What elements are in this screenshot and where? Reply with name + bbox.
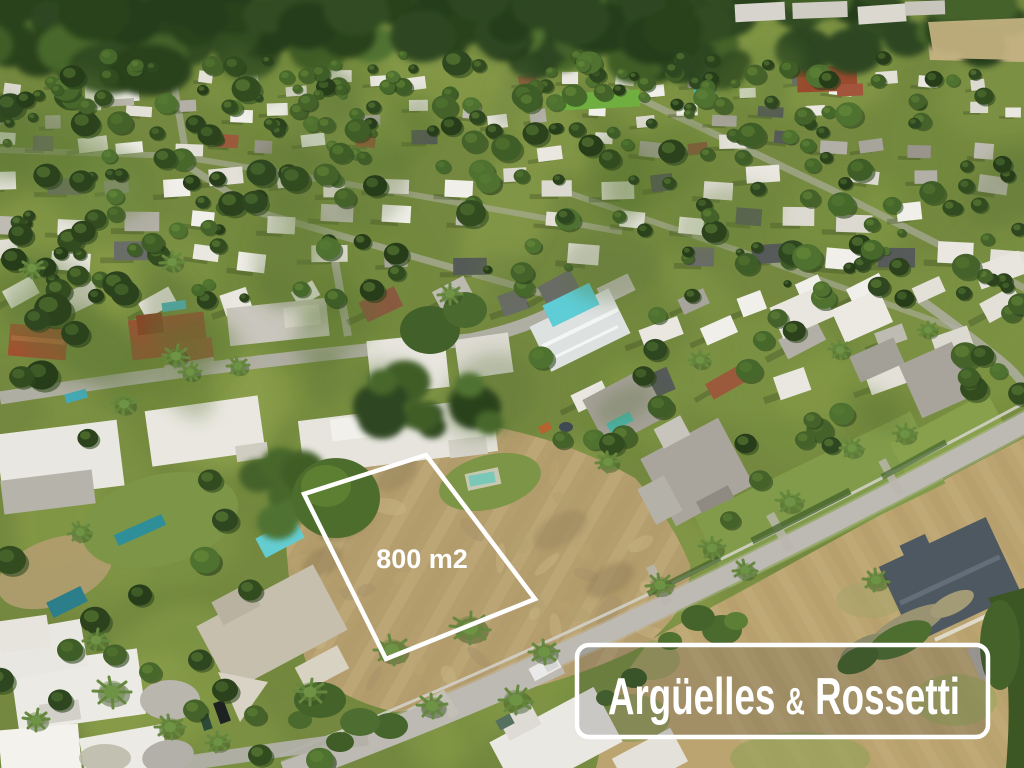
svg-text:Argüelles & Rossetti: Argüelles & Rossetti	[608, 668, 960, 726]
svg-text:800 m2: 800 m2	[376, 544, 468, 574]
